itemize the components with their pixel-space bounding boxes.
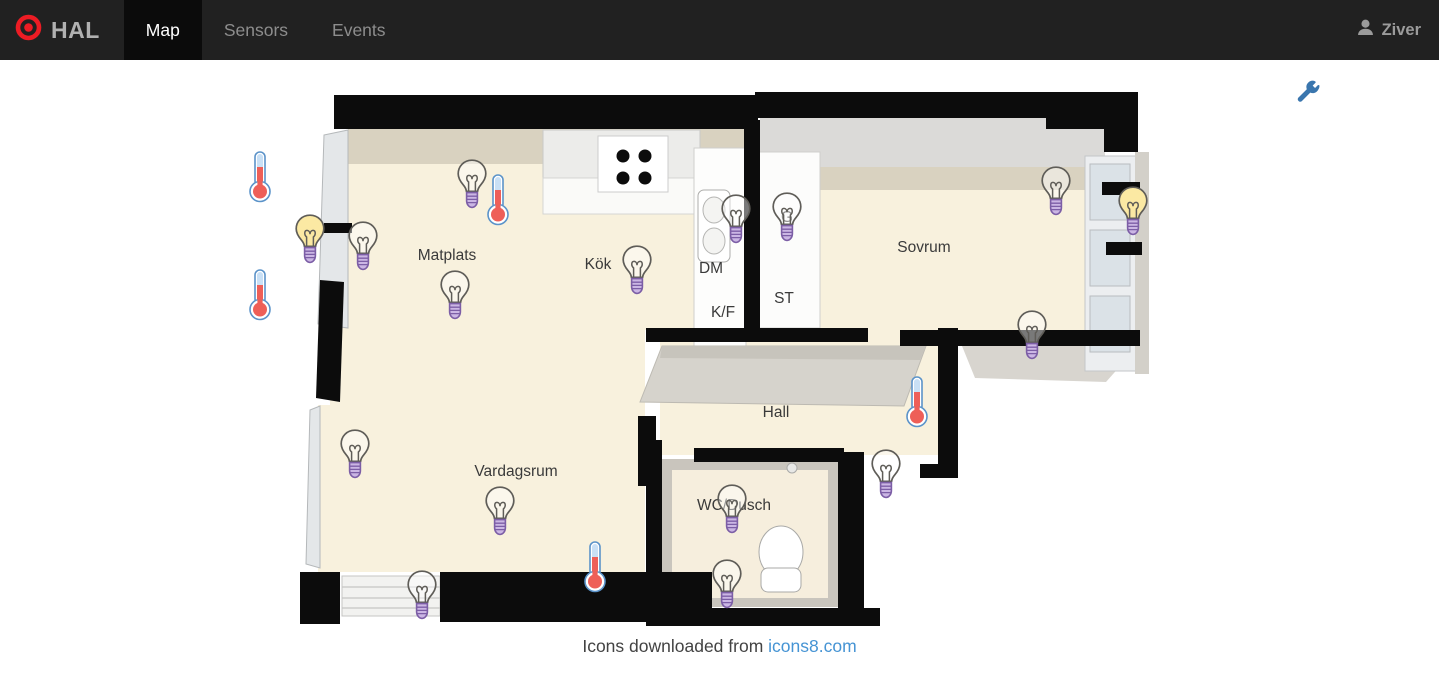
sensor-temp-entry-lower[interactable] xyxy=(246,268,274,322)
attribution: Icons downloaded from icons8.com xyxy=(0,636,1439,657)
room-label-sovrum: Sovrum xyxy=(897,239,950,257)
sensor-light-vardagsrum-w[interactable] xyxy=(337,428,373,482)
sensor-light-entry-off[interactable] xyxy=(345,220,381,274)
sensor-light-vardagsrum[interactable] xyxy=(482,485,518,539)
sensor-light-garderob[interactable] xyxy=(769,191,805,245)
settings-wrench-button[interactable] xyxy=(1292,78,1324,110)
room-label-kf: K/F xyxy=(711,304,735,322)
main-tabs: Map Sensors Events xyxy=(124,0,408,60)
app-title: HAL xyxy=(51,17,100,44)
sensor-light-wc-s[interactable] xyxy=(709,558,745,612)
room-label-kok: Kök xyxy=(585,256,612,274)
room-label-matplats: Matplats xyxy=(418,247,477,265)
sensor-light-dm-sink[interactable] xyxy=(718,193,754,247)
sensor-light-sovrum-balkong[interactable] xyxy=(1115,185,1151,239)
sensor-light-vardagsrum-s[interactable] xyxy=(404,569,440,623)
sensor-light-sovrum-n[interactable] xyxy=(1038,165,1074,219)
tab-events[interactable]: Events xyxy=(310,0,408,60)
username: Ziver xyxy=(1382,21,1421,40)
sensor-light-sovrum-s[interactable] xyxy=(1014,309,1050,363)
hal-eye-icon xyxy=(15,14,42,46)
sensor-temp-hall[interactable] xyxy=(903,375,931,429)
sensor-light-matplats[interactable] xyxy=(437,269,473,323)
app-logo[interactable]: HAL xyxy=(0,0,124,60)
sensor-light-entry-on[interactable] xyxy=(292,213,328,267)
sensor-light-hall[interactable] xyxy=(868,448,904,502)
map-view: MatplatsKökDMK/FSTGSovrumHallVardagsrumW… xyxy=(0,60,1439,675)
sensor-temp-entry-upper[interactable] xyxy=(246,150,274,204)
tab-sensors[interactable]: Sensors xyxy=(202,0,310,60)
room-label-st: ST xyxy=(774,290,794,308)
wrench-icon xyxy=(1295,94,1321,109)
sensor-temp-vardagsrum[interactable] xyxy=(581,540,609,594)
sensor-light-wc[interactable] xyxy=(714,483,750,537)
room-label-hall: Hall xyxy=(763,404,790,422)
room-label-dm: DM xyxy=(699,260,723,278)
user-icon xyxy=(1356,18,1375,42)
user-menu[interactable]: Ziver xyxy=(1338,0,1439,60)
attribution-text: Icons downloaded from xyxy=(582,636,768,656)
room-label-vardagsrum: Vardagsrum xyxy=(474,463,557,481)
sensor-light-matplats-wall[interactable] xyxy=(454,158,490,212)
tab-map[interactable]: Map xyxy=(124,0,202,60)
top-nav: HAL Map Sensors Events Ziver xyxy=(0,0,1439,60)
sensor-light-kok[interactable] xyxy=(619,244,655,298)
icons8-link[interactable]: icons8.com xyxy=(768,636,857,656)
